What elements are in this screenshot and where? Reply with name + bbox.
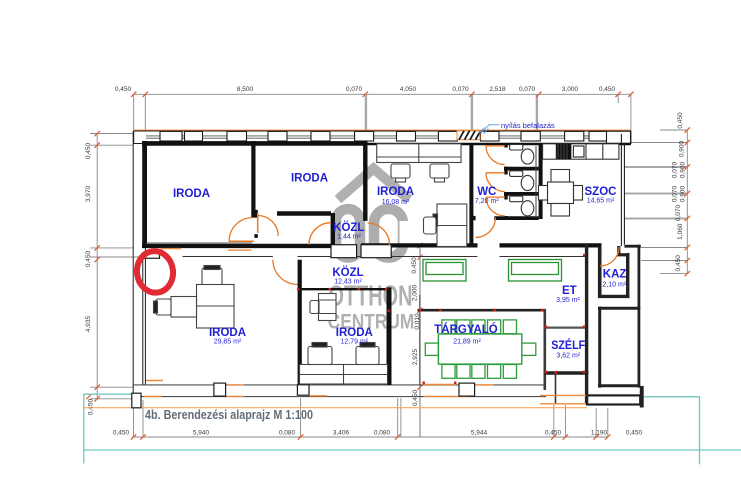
svg-text:14,65 m²: 14,65 m² [587,198,615,205]
svg-text:SZOC: SZOC [585,186,617,198]
svg-text:0,070: 0,070 [452,86,469,93]
svg-text:4,935: 4,935 [85,315,92,332]
svg-text:KÖZL: KÖZL [332,266,363,279]
svg-text:0,900: 0,900 [680,185,687,202]
svg-text:KÖZL: KÖZL [333,221,364,234]
svg-text:0,450: 0,450 [599,86,616,93]
svg-text:12,79 m²: 12,79 m² [340,339,368,346]
svg-text:4b. Berendezési alaprajz M 1:1: 4b. Berendezési alaprajz M 1:100 [145,408,313,422]
svg-text:0,900: 0,900 [680,161,687,178]
svg-text:IRODA: IRODA [336,327,373,339]
svg-text:SZÉLF: SZÉLF [551,339,585,352]
svg-text:29,85 m²: 29,85 m² [214,339,242,346]
svg-text:5,944: 5,944 [471,430,488,437]
svg-text:IRODA: IRODA [291,173,328,185]
svg-text:0,450: 0,450 [677,112,684,129]
svg-text:IRODA: IRODA [173,188,210,200]
svg-text:7,20 m²: 7,20 m² [475,198,499,205]
svg-text:0,070: 0,070 [672,185,679,202]
svg-text:1,44 m²: 1,44 m² [337,234,361,241]
svg-text:3,970: 3,970 [85,185,92,202]
svg-text:16,08 m²: 16,08 m² [382,199,410,206]
svg-text:0,450: 0,450 [85,142,92,159]
svg-text:0,070: 0,070 [346,86,363,93]
svg-text:21,89 m²: 21,89 m² [453,339,481,346]
svg-text:nyílás befalazás: nyílás befalazás [501,121,555,130]
svg-text:IRODA: IRODA [377,186,414,198]
svg-text:WC: WC [477,186,496,198]
svg-text:8,500: 8,500 [237,86,254,93]
svg-text:0,450: 0,450 [626,430,643,437]
svg-text:TÁRGYALÓ: TÁRGYALÓ [434,323,498,336]
svg-text:0,450: 0,450 [85,250,92,267]
svg-text:KAZ: KAZ [603,269,627,281]
svg-text:ET: ET [562,285,577,297]
svg-text:2,925: 2,925 [412,348,419,365]
svg-text:2,000: 2,000 [412,284,419,301]
svg-text:5,940: 5,940 [193,430,210,437]
svg-text:0,070: 0,070 [672,161,679,178]
svg-text:0,070: 0,070 [675,204,682,221]
svg-text:4,050: 4,050 [400,86,417,93]
svg-text:1,060: 1,060 [677,223,684,240]
svg-text:0,070: 0,070 [519,86,536,93]
svg-text:0,450: 0,450 [88,398,95,415]
svg-text:3,406: 3,406 [333,430,350,437]
svg-text:3,62 m²: 3,62 m² [556,353,580,360]
svg-text:0,450: 0,450 [545,430,562,437]
svg-text:0,450: 0,450 [113,430,130,437]
svg-text:0,900: 0,900 [679,140,686,157]
svg-text:0,080: 0,080 [279,430,296,437]
svg-text:0,450: 0,450 [412,389,419,406]
svg-text:0,450: 0,450 [115,86,132,93]
svg-text:3,000: 3,000 [562,86,579,93]
svg-text:IRODA: IRODA [209,327,246,339]
svg-text:12,43 m²: 12,43 m² [334,279,362,286]
svg-text:2,10 m²: 2,10 m² [602,282,626,289]
svg-text:0,080: 0,080 [374,430,391,437]
svg-text:3,95 m²: 3,95 m² [556,297,580,304]
svg-text:0,450: 0,450 [675,255,682,272]
svg-text:2,518: 2,518 [489,86,506,93]
svg-text:1,190: 1,190 [591,430,608,437]
